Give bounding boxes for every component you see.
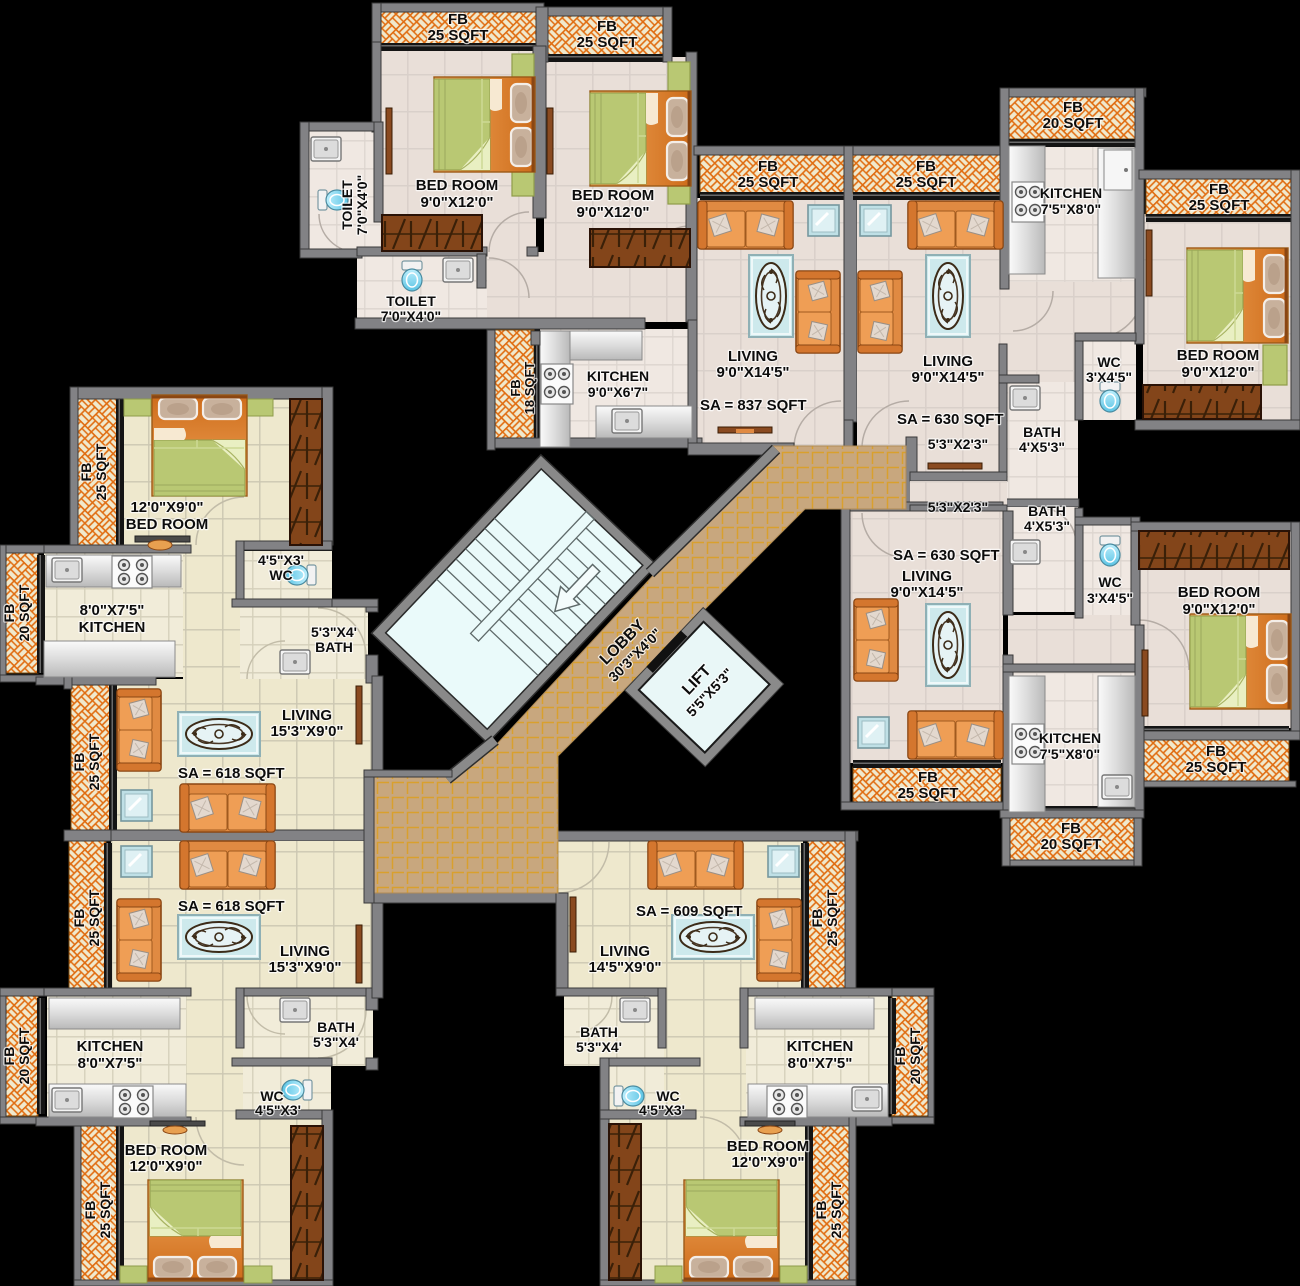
svg-text:FB: FB <box>82 1201 98 1220</box>
svg-text:3'X4'5": 3'X4'5" <box>1086 369 1132 385</box>
svg-text:FB: FB <box>78 463 94 482</box>
svg-text:7'5"X8'0": 7'5"X8'0" <box>1040 746 1100 762</box>
svg-text:BED ROOM: BED ROOM <box>1178 584 1261 601</box>
svg-text:SA = 618 SQFT: SA = 618 SQFT <box>178 765 285 782</box>
svg-text:7'5"X8'0": 7'5"X8'0" <box>1041 201 1101 217</box>
svg-text:4'5"X3': 4'5"X3' <box>258 552 304 568</box>
svg-text:FB: FB <box>508 379 523 396</box>
svg-text:12'0"X9'0": 12'0"X9'0" <box>130 499 203 516</box>
svg-text:7'0"X4'0": 7'0"X4'0" <box>354 175 370 235</box>
svg-text:FB: FB <box>71 753 87 772</box>
svg-text:LIVING: LIVING <box>282 707 332 724</box>
svg-text:BATH: BATH <box>580 1024 618 1040</box>
svg-text:FB: FB <box>758 158 778 175</box>
svg-text:20 SQFT: 20 SQFT <box>1043 115 1104 132</box>
svg-text:20 SQFT: 20 SQFT <box>907 1027 923 1084</box>
svg-text:5'3"X4': 5'3"X4' <box>313 1034 359 1050</box>
svg-text:BED ROOM: BED ROOM <box>126 516 209 533</box>
svg-text:LIVING: LIVING <box>728 348 778 365</box>
svg-text:SA = 618 SQFT: SA = 618 SQFT <box>178 898 285 915</box>
svg-text:KITCHEN: KITCHEN <box>1040 185 1102 201</box>
svg-text:TOILET: TOILET <box>339 180 355 230</box>
svg-text:FB: FB <box>1209 181 1229 198</box>
svg-text:FB: FB <box>918 769 938 786</box>
svg-text:FB: FB <box>1 1047 17 1066</box>
svg-text:FB: FB <box>597 18 617 35</box>
svg-text:FB: FB <box>916 158 936 175</box>
svg-text:FB: FB <box>1063 99 1083 116</box>
svg-text:25 SQFT: 25 SQFT <box>86 889 102 946</box>
svg-text:25 SQFT: 25 SQFT <box>86 733 102 790</box>
svg-text:5'3"X4': 5'3"X4' <box>576 1039 622 1055</box>
svg-text:25 SQFT: 25 SQFT <box>896 174 957 191</box>
svg-text:SA = 609 SQFT: SA = 609 SQFT <box>636 903 743 920</box>
svg-text:25 SQFT: 25 SQFT <box>824 889 840 946</box>
svg-text:WC: WC <box>1097 354 1120 370</box>
svg-text:9'0"X12'0": 9'0"X12'0" <box>1182 601 1255 618</box>
svg-text:LIVING: LIVING <box>600 943 650 960</box>
svg-text:8'0"X7'5": 8'0"X7'5" <box>788 1055 853 1072</box>
svg-text:12'0"X9'0": 12'0"X9'0" <box>129 1158 202 1175</box>
svg-text:8'0"X7'5": 8'0"X7'5" <box>80 602 145 619</box>
svg-text:BED ROOM: BED ROOM <box>125 1142 208 1159</box>
svg-text:KITCHEN: KITCHEN <box>787 1038 854 1055</box>
svg-text:SA = 837 SQFT: SA = 837 SQFT <box>700 397 807 414</box>
svg-text:5'3"X4': 5'3"X4' <box>311 624 357 640</box>
svg-text:25 SQFT: 25 SQFT <box>93 443 109 500</box>
svg-text:18 SQFT: 18 SQFT <box>522 362 537 415</box>
svg-text:20 SQFT: 20 SQFT <box>1041 836 1102 853</box>
svg-text:TOILET: TOILET <box>386 293 436 309</box>
svg-text:4'X5'3": 4'X5'3" <box>1019 439 1065 455</box>
svg-text:BED ROOM: BED ROOM <box>572 187 655 204</box>
svg-text:LIVING: LIVING <box>280 943 330 960</box>
svg-text:FB: FB <box>809 909 825 928</box>
svg-text:20 SQFT: 20 SQFT <box>16 584 32 641</box>
svg-text:BED ROOM: BED ROOM <box>1177 347 1260 364</box>
svg-text:SA = 630 SQFT: SA = 630 SQFT <box>893 547 1000 564</box>
svg-text:4'5"X3': 4'5"X3' <box>255 1102 301 1118</box>
svg-text:BATH: BATH <box>317 1019 355 1035</box>
svg-text:25 SQFT: 25 SQFT <box>97 1181 113 1238</box>
svg-text:LIVING: LIVING <box>923 353 973 370</box>
svg-text:FB: FB <box>892 1047 908 1066</box>
svg-text:KITCHEN: KITCHEN <box>77 1038 144 1055</box>
svg-text:FB: FB <box>448 11 468 28</box>
svg-text:15'3"X9'0": 15'3"X9'0" <box>268 959 341 976</box>
svg-text:FB: FB <box>71 909 87 928</box>
svg-text:15'3"X9'0": 15'3"X9'0" <box>270 723 343 740</box>
svg-text:4'5"X3': 4'5"X3' <box>639 1102 685 1118</box>
svg-text:SA = 630 SQFT: SA = 630 SQFT <box>897 411 1004 428</box>
svg-text:9'0"X14'5": 9'0"X14'5" <box>716 364 789 381</box>
svg-text:FB: FB <box>1206 743 1226 760</box>
svg-text:BATH: BATH <box>315 639 353 655</box>
svg-text:20 SQFT: 20 SQFT <box>16 1027 32 1084</box>
svg-text:BED ROOM: BED ROOM <box>727 1138 810 1155</box>
svg-text:4'X5'3": 4'X5'3" <box>1024 518 1070 534</box>
svg-text:3'X4'5": 3'X4'5" <box>1087 590 1133 606</box>
svg-text:25 SQFT: 25 SQFT <box>577 34 638 51</box>
svg-text:12'0"X9'0": 12'0"X9'0" <box>731 1154 804 1171</box>
svg-text:KITCHEN: KITCHEN <box>79 619 146 636</box>
svg-text:25 SQFT: 25 SQFT <box>1186 759 1247 776</box>
svg-text:LIVING: LIVING <box>902 568 952 585</box>
svg-text:25 SQFT: 25 SQFT <box>898 785 959 802</box>
svg-text:9'0"X14'5": 9'0"X14'5" <box>890 584 963 601</box>
svg-text:FB: FB <box>1 604 17 623</box>
svg-text:BATH: BATH <box>1028 503 1066 519</box>
svg-text:14'5"X9'0": 14'5"X9'0" <box>588 959 661 976</box>
svg-text:9'0"X12'0": 9'0"X12'0" <box>576 204 649 221</box>
svg-text:FB: FB <box>813 1201 829 1220</box>
svg-text:25 SQFT: 25 SQFT <box>428 27 489 44</box>
svg-text:9'0"X12'0": 9'0"X12'0" <box>1181 364 1254 381</box>
svg-text:FB: FB <box>1061 820 1081 837</box>
svg-text:25 SQFT: 25 SQFT <box>738 174 799 191</box>
svg-text:KITCHEN: KITCHEN <box>1039 730 1101 746</box>
svg-text:BED ROOM: BED ROOM <box>416 177 499 194</box>
svg-text:BATH: BATH <box>1023 424 1061 440</box>
svg-text:5'3"X2'3": 5'3"X2'3" <box>928 499 988 515</box>
svg-text:25 SQFT: 25 SQFT <box>1189 197 1250 214</box>
svg-text:5'3"X2'3": 5'3"X2'3" <box>928 436 988 452</box>
svg-text:9'0"X6'7": 9'0"X6'7" <box>588 384 648 400</box>
svg-text:25 SQFT: 25 SQFT <box>828 1181 844 1238</box>
svg-text:9'0"X14'5": 9'0"X14'5" <box>911 369 984 386</box>
svg-text:8'0"X7'5": 8'0"X7'5" <box>78 1055 143 1072</box>
svg-text:7'0"X4'0": 7'0"X4'0" <box>381 308 441 324</box>
svg-text:KITCHEN: KITCHEN <box>587 368 649 384</box>
svg-text:WC: WC <box>269 567 292 583</box>
svg-text:9'0"X12'0": 9'0"X12'0" <box>420 194 493 211</box>
svg-text:WC: WC <box>1098 574 1121 590</box>
